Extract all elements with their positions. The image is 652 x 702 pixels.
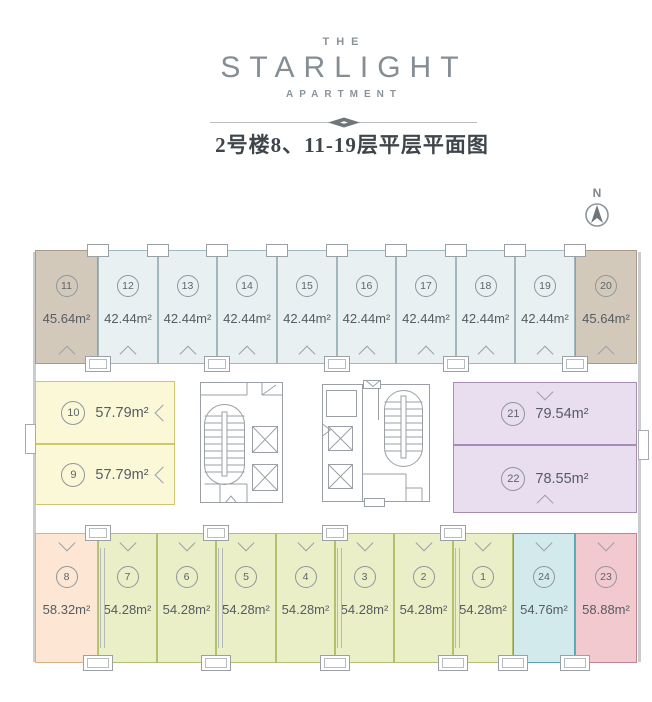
unit-number: 10	[61, 401, 85, 425]
unit-area: 58.32m²	[43, 602, 91, 617]
door-swing-icon	[178, 535, 195, 552]
unit-area: 54.76m²	[520, 602, 568, 617]
door-swing-icon	[238, 535, 255, 552]
utility-box	[385, 244, 407, 257]
unit-area: 42.44m²	[223, 311, 271, 326]
unit-23: 2358.88m²	[575, 533, 637, 663]
unit-area: 54.28m²	[222, 602, 270, 617]
elevator-icon	[253, 427, 278, 453]
unit-area: 42.44m²	[521, 311, 569, 326]
unit-number: 16	[356, 275, 378, 297]
unit-number: 1	[472, 566, 494, 588]
unit-area: 42.44m²	[402, 311, 450, 326]
unit-number: 20	[595, 275, 617, 297]
utility-box	[85, 525, 111, 541]
door-swing-icon	[239, 346, 256, 363]
door-swing-icon	[536, 535, 553, 552]
utility-box	[87, 244, 109, 257]
unit-number: 17	[415, 275, 437, 297]
unit-14: 1442.44m²	[217, 250, 277, 364]
unit-area: 42.44m²	[283, 311, 331, 326]
utility-box	[443, 356, 469, 372]
unit-4: 454.28m²	[276, 533, 335, 663]
floorplan-page: THE STARLIGHT APARTMENT 2号楼8、11-19层平层平面图…	[0, 0, 652, 702]
utility-box	[320, 655, 350, 671]
unit-1: 154.28m²	[453, 533, 513, 663]
unit-21: 2179.54m²	[453, 382, 637, 445]
unit-area: 45.64m²	[43, 311, 91, 326]
unit-15: 1542.44m²	[277, 250, 337, 364]
utility-box	[201, 655, 231, 671]
unit-6: 654.28m²	[157, 533, 216, 663]
door-swing-icon	[358, 346, 375, 363]
pipe-shaft	[337, 548, 342, 648]
door-swing-icon	[356, 535, 373, 552]
unit-area: 54.28m²	[400, 602, 448, 617]
pipe-shaft	[100, 548, 105, 648]
unit-17: 1742.44m²	[396, 250, 456, 364]
unit-area: 54.28m²	[459, 602, 507, 617]
door-swing-icon	[120, 346, 137, 363]
utility-box	[206, 244, 228, 257]
door-swing-icon	[58, 535, 75, 552]
unit-area: 54.28m²	[282, 602, 330, 617]
unit-number: 9	[61, 463, 85, 487]
unit-area: 45.64m²	[582, 311, 630, 326]
unit-2: 254.28m²	[394, 533, 453, 663]
unit-number: 12	[117, 275, 139, 297]
door-swing-icon	[475, 535, 492, 552]
door-swing-icon	[415, 535, 432, 552]
unit-area: 57.79m²	[95, 467, 148, 483]
unit-area: 79.54m²	[535, 406, 588, 422]
unit-number: 4	[295, 566, 317, 588]
utility-box	[266, 244, 288, 257]
unit-number: 21	[501, 402, 525, 426]
unit-7: 754.28m²	[98, 533, 157, 663]
balcony	[638, 430, 649, 460]
pipe-shaft	[218, 548, 223, 648]
unit-11: 1145.64m²	[35, 250, 98, 364]
door-swing-icon	[418, 346, 435, 363]
unit-number: 15	[296, 275, 318, 297]
unit-16: 1642.44m²	[337, 250, 396, 364]
stair-elevator-core-right	[322, 380, 430, 507]
utility-box	[203, 525, 229, 541]
unit-area: 57.79m²	[95, 405, 148, 421]
unit-5: 554.28m²	[216, 533, 276, 663]
door-swing-icon	[537, 495, 554, 512]
unit-area: 78.55m²	[535, 471, 588, 487]
pipe-shaft	[455, 548, 460, 648]
unit-number: 6	[176, 566, 198, 588]
door-swing-icon	[477, 346, 494, 363]
unit-number: 8	[56, 566, 78, 588]
unit-22: 2278.55m²	[453, 445, 637, 513]
unit-number: 3	[354, 566, 376, 588]
utility-box	[326, 244, 348, 257]
unit-3: 354.28m²	[335, 533, 394, 663]
utility-box	[504, 244, 526, 257]
door-swing-icon	[598, 346, 615, 363]
unit-number: 7	[117, 566, 139, 588]
door-swing-icon	[299, 346, 316, 363]
unit-number: 24	[533, 566, 555, 588]
utility-box	[498, 655, 528, 671]
utility-box	[560, 655, 590, 671]
unit-number: 23	[595, 566, 617, 588]
door-swing-icon	[155, 404, 172, 421]
door-swing-icon	[297, 535, 314, 552]
unit-number: 5	[235, 566, 257, 588]
door-icon	[262, 383, 282, 396]
utility-box	[438, 655, 468, 671]
utility-box	[564, 244, 586, 257]
unit-area: 54.28m²	[163, 602, 211, 617]
unit-13: 1342.44m²	[158, 250, 217, 364]
unit-number: 2	[413, 566, 435, 588]
elevator-icon	[253, 465, 278, 491]
door-swing-icon	[179, 346, 196, 363]
unit-number: 19	[534, 275, 556, 297]
unit-area: 58.88m²	[582, 602, 630, 617]
utility-box	[440, 525, 466, 541]
unit-12: 1242.44m²	[98, 250, 158, 364]
door-swing-icon	[58, 346, 75, 363]
door-swing-icon	[537, 346, 554, 363]
utility-box	[85, 356, 111, 372]
unit-number: 11	[56, 275, 78, 297]
elevator-icon	[329, 465, 353, 489]
unit-area: 54.28m²	[104, 602, 152, 617]
door-swing-icon	[155, 466, 172, 483]
unit-number: 13	[177, 275, 199, 297]
utility-box	[324, 356, 350, 372]
unit-24: 2454.76m²	[513, 533, 575, 663]
utility-box	[322, 525, 348, 541]
stair-elevator-core-left	[200, 382, 283, 503]
unit-number: 14	[236, 275, 258, 297]
door-swing-icon	[598, 535, 615, 552]
unit-area: 42.44m²	[343, 311, 391, 326]
unit-19: 1942.44m²	[515, 250, 575, 364]
unit-area: 54.28m²	[341, 602, 389, 617]
door-icon	[323, 424, 331, 436]
balcony	[25, 424, 36, 454]
door-swing-icon	[119, 535, 136, 552]
unit-9: 957.79m²	[35, 444, 175, 505]
utility-box	[83, 655, 113, 671]
unit-area: 42.44m²	[164, 311, 212, 326]
unit-20: 2045.64m²	[575, 250, 637, 364]
unit-area: 42.44m²	[462, 311, 510, 326]
unit-8: 858.32m²	[35, 533, 98, 663]
unit-10: 1057.79m²	[35, 381, 175, 444]
utility-box	[445, 244, 467, 257]
unit-18: 1842.44m²	[456, 250, 515, 364]
utility-box	[204, 356, 230, 372]
utility-box	[147, 244, 169, 257]
utility-box	[562, 356, 588, 372]
unit-number: 18	[475, 275, 497, 297]
unit-number: 22	[501, 467, 525, 491]
unit-area: 42.44m²	[104, 311, 152, 326]
elevator-icon	[329, 427, 353, 451]
door-swing-icon	[537, 384, 554, 401]
floorplan: 1145.64m²1242.44m²1342.44m²1442.44m²1542…	[0, 0, 652, 702]
